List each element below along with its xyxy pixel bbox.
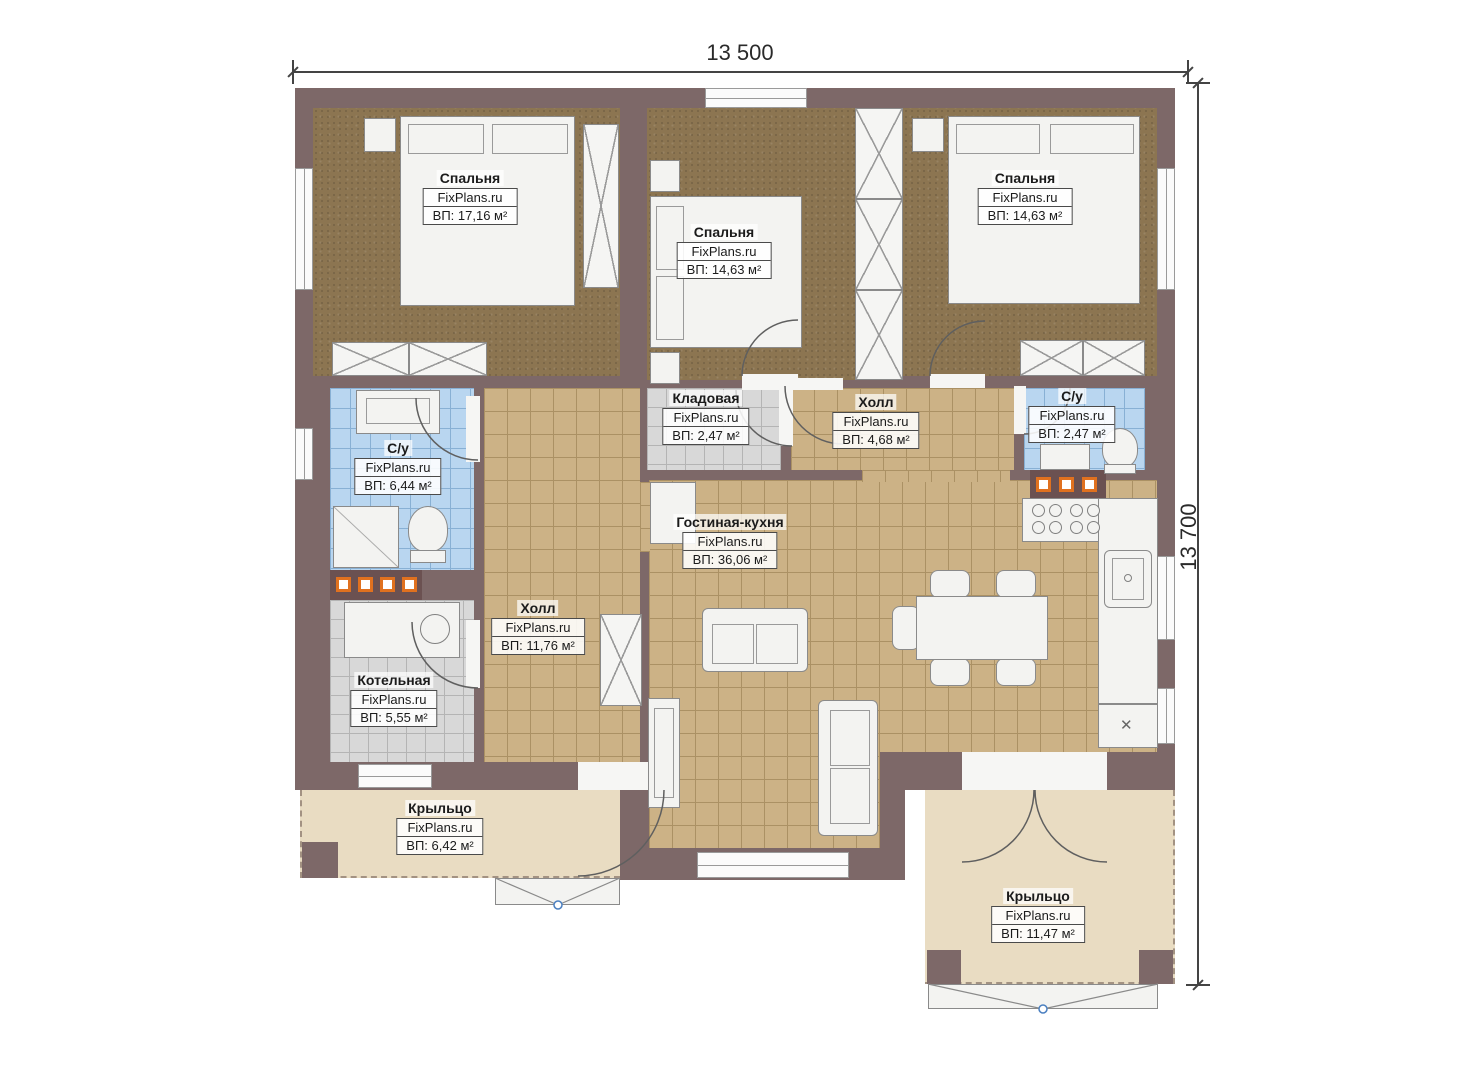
nightstand	[650, 160, 680, 192]
door-opening-bathroom-left	[466, 396, 480, 462]
brand-watermark: FixPlans.ru	[1029, 407, 1114, 425]
boiler-dial	[420, 614, 450, 644]
stove-burner	[1087, 521, 1100, 534]
door-opening-bathroom-right	[1014, 386, 1026, 434]
brand-watermark: FixPlans.ru	[492, 619, 584, 637]
room-name: Холл	[517, 600, 558, 616]
chair	[930, 570, 970, 598]
toilet-tank	[1104, 464, 1136, 474]
passage-hallmain-living	[640, 482, 650, 552]
brand-watermark: FixPlans.ru	[351, 691, 436, 709]
room-label-hall-main: Холл FixPlans.ruВП: 11,76 м²	[491, 600, 585, 655]
brand-watermark: FixPlans.ru	[355, 459, 440, 477]
pillow	[492, 124, 568, 154]
room-label-living-kitchen: Гостиная-кухня FixPlans.ruВП: 36,06 м²	[673, 514, 786, 569]
room-label-porch-left: Крыльцо FixPlans.ruВП: 6,42 м²	[396, 800, 483, 855]
brand-watermark: FixPlans.ru	[397, 819, 482, 837]
stove-burner	[1087, 504, 1100, 517]
stove-burner	[1070, 521, 1083, 534]
nightstand	[650, 352, 680, 384]
porch-column	[1139, 950, 1173, 984]
vent-square	[358, 577, 373, 592]
wardrobe	[855, 108, 903, 199]
vent-square	[1082, 477, 1097, 492]
wardrobe	[855, 290, 903, 380]
room-label-bathroom-right: С/у FixPlans.ruВП: 2,47 м²	[1028, 388, 1115, 443]
brand-watermark: FixPlans.ru	[684, 533, 777, 551]
window-right-kitchen	[1157, 556, 1175, 640]
wardrobe	[600, 614, 642, 706]
nightstand	[364, 118, 396, 152]
brand-watermark: FixPlans.ru	[833, 413, 918, 431]
room-name: Холл	[855, 394, 896, 410]
dimension-height-label: 13 700	[1176, 492, 1202, 582]
room-area: ВП: 6,42 м²	[397, 837, 482, 854]
room-name: Кладовая	[669, 390, 742, 406]
window-top	[705, 88, 807, 108]
stove-burner	[1049, 521, 1062, 534]
wardrobe	[332, 342, 409, 376]
stove-burner	[1070, 504, 1083, 517]
brand-watermark: FixPlans.ru	[678, 243, 771, 261]
floor-plan: 13 500 13 700	[0, 0, 1474, 1080]
room-name: Спальня	[992, 170, 1058, 186]
window-left-bathroom	[295, 428, 313, 480]
sofa-cushion	[830, 710, 870, 766]
window-bottom-boiler	[358, 764, 432, 788]
room-name: Крыльцо	[1003, 888, 1073, 904]
vent-square	[336, 577, 351, 592]
kitchen-mark: ✕	[1120, 716, 1133, 734]
passage-hall-living	[862, 470, 1010, 482]
chair	[930, 658, 970, 686]
porch-left-steps	[495, 878, 620, 905]
porch-column	[302, 842, 338, 878]
room-name: С/у	[384, 440, 412, 456]
pillow	[408, 124, 484, 154]
tv-screen	[654, 708, 674, 798]
nightstand	[912, 118, 944, 152]
shower	[333, 506, 399, 568]
pillow	[656, 276, 684, 340]
stove-burner	[1032, 504, 1045, 517]
room-name: Гостиная-кухня	[673, 514, 786, 530]
door-opening-bedroom2	[785, 378, 843, 390]
vent-square	[380, 577, 395, 592]
room-area: ВП: 17,16 м²	[424, 207, 517, 224]
room-area: ВП: 4,68 м²	[833, 431, 918, 448]
brand-watermark: FixPlans.ru	[424, 189, 517, 207]
room-label-hall-small: Холл FixPlans.ruВП: 4,68 м²	[832, 394, 919, 449]
porch-right-steps	[928, 984, 1158, 1009]
room-area: ВП: 2,47 м²	[663, 427, 748, 444]
room-label-bedroom-3: Спальня FixPlans.ruВП: 14,63 м²	[978, 170, 1073, 225]
window-left-bedroom1	[295, 168, 313, 290]
dimension-line-top	[292, 71, 1189, 73]
door-opening-bedroom3	[930, 374, 985, 388]
wardrobe	[583, 124, 619, 288]
wardrobe	[1083, 340, 1145, 376]
vent-square	[1036, 477, 1051, 492]
pillow	[956, 124, 1040, 154]
room-area: ВП: 6,44 м²	[355, 477, 440, 494]
room-label-bedroom-2: Спальня FixPlans.ruВП: 14,63 м²	[677, 224, 772, 279]
brand-watermark: FixPlans.ru	[992, 907, 1084, 925]
sofa-cushion	[756, 624, 798, 664]
vent-square	[1059, 477, 1074, 492]
room-area: ВП: 2,47 м²	[1029, 425, 1114, 442]
toilet-tank	[410, 550, 446, 563]
chair	[996, 658, 1036, 686]
wardrobe	[855, 199, 903, 290]
room-name: С/у	[1058, 388, 1086, 404]
wardrobe	[1020, 340, 1083, 376]
window-right-bedroom3	[1157, 168, 1175, 290]
room-label-boiler: Котельная FixPlans.ruВП: 5,55 м²	[350, 672, 437, 727]
porch-right-floor	[925, 790, 1175, 984]
room-label-bedroom-1: Спальня FixPlans.ruВП: 17,16 м²	[423, 170, 518, 225]
window-right-living	[1157, 688, 1175, 744]
sink	[1040, 444, 1090, 470]
stove-burner	[1032, 521, 1045, 534]
room-label-storage: Кладовая FixPlans.ruВП: 2,47 м²	[662, 390, 749, 445]
door-opening-storage	[779, 390, 793, 446]
room-area: ВП: 36,06 м²	[684, 551, 777, 568]
room-area: ВП: 14,63 м²	[678, 261, 771, 278]
room-area: ВП: 11,76 м²	[492, 637, 584, 654]
pillow	[1050, 124, 1134, 154]
brand-watermark: FixPlans.ru	[663, 409, 748, 427]
room-area: ВП: 11,47 м²	[992, 925, 1084, 942]
room-name: Крыльцо	[405, 800, 475, 816]
room-label-bathroom-left: С/у FixPlans.ruВП: 6,44 м²	[354, 440, 441, 495]
room-area: ВП: 5,55 м²	[351, 709, 436, 726]
room-name: Спальня	[437, 170, 503, 186]
room-name: Спальня	[691, 224, 757, 240]
vent-square	[402, 577, 417, 592]
wardrobe	[409, 342, 487, 376]
toilet	[408, 506, 448, 552]
window-bottom-living	[697, 852, 849, 878]
chair	[996, 570, 1036, 598]
sink-basin	[366, 398, 430, 424]
door-opening-porch-right	[962, 752, 1107, 790]
sofa-cushion	[712, 624, 754, 664]
door-opening-boiler	[466, 620, 480, 688]
sofa-cushion	[830, 768, 870, 824]
room-name: Котельная	[354, 672, 433, 688]
stove-burner	[1049, 504, 1062, 517]
room-label-porch-right: Крыльцо FixPlans.ruВП: 11,47 м²	[991, 888, 1085, 943]
sink-drain	[1124, 574, 1132, 582]
dining-table	[916, 596, 1048, 660]
brand-watermark: FixPlans.ru	[979, 189, 1072, 207]
room-area: ВП: 14,63 м²	[979, 207, 1072, 224]
porch-column	[927, 950, 961, 984]
dimension-width-label: 13 500	[695, 40, 785, 66]
